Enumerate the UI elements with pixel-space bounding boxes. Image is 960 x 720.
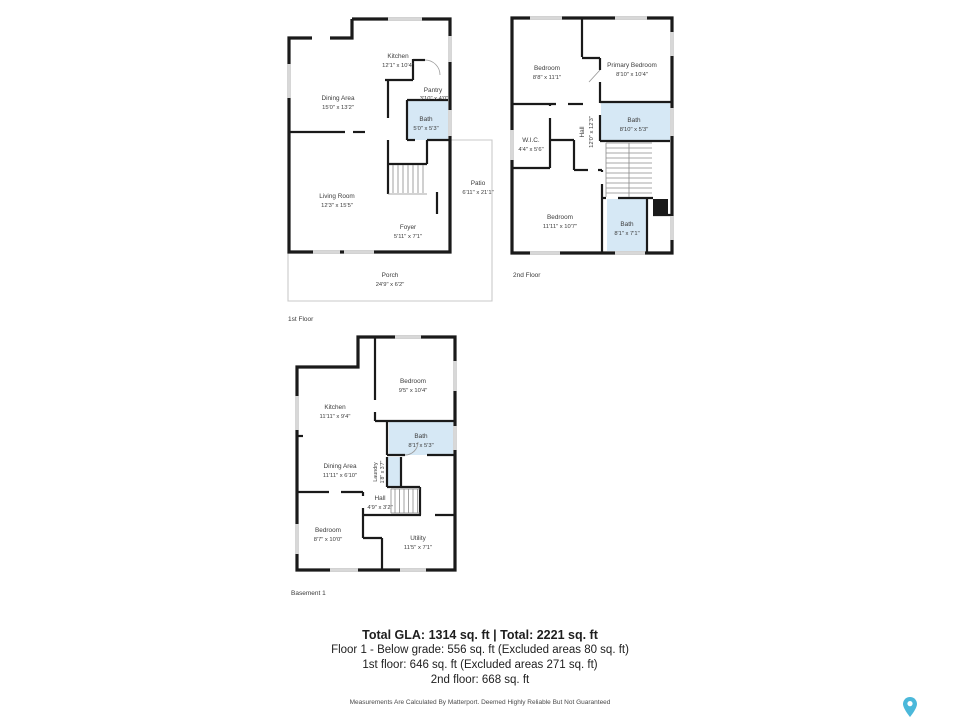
room-dims: 8'1" x 7'1" [614,231,639,237]
floor-label-1st: 1st Floor [288,316,313,323]
basement-floor-plan: Bedroom 9'5" x 10'4" Kitchen 11'11" x 9'… [283,328,463,578]
chase-fill [653,199,668,215]
room-dims: 11'11" x 10'7" [543,224,577,230]
room-dims: 8'10" x 10'4" [616,72,648,78]
stairs [391,489,420,513]
stairs [606,143,652,197]
room-dims: 12'3" x 15'5" [321,203,353,209]
room-label: Laundry [373,462,379,482]
total-gla-title: Total GLA: 1314 sq. ft | Total: 2221 sq.… [0,628,960,643]
door-swing [589,70,600,82]
room-dims: 3'10" x 4'0" [420,96,449,102]
room-label: Bedroom [547,214,573,221]
room-dims: 5'0" x 5'3" [413,126,438,132]
room-dims: 12'0" x 12'3" [589,116,595,148]
room-dims: 11'11" x 6'10" [323,473,357,479]
room-label: Primary Bedroom [607,62,657,69]
room-dims: 12'1" x 10'4" [382,63,414,69]
room-dims: 4'9" x 3'2" [367,505,392,511]
area-summary: Total GLA: 1314 sq. ft | Total: 2221 sq.… [0,628,960,688]
summary-line-2nd-floor: 2nd floor: 668 sq. ft [0,673,960,688]
room-label: Pantry [424,87,443,94]
pin-hole [907,701,912,706]
room-dims: 6'11" x 21'1" [462,190,493,196]
floor-label-basement: Basement 1 [291,590,326,597]
room-dims: 1'8" x 3'7" [380,461,386,484]
room-dims: 8'10" x 5'3" [620,127,649,133]
rotated-laundry-label: Laundry 1'8" x 3'7" [373,461,386,484]
matterport-pin-logo [902,696,918,718]
room-label: Dining Area [321,95,354,102]
room-dims: 5'11" x 7'1" [394,234,422,240]
room-dims: 8'1" x 5'3" [408,443,433,449]
summary-line-1st-floor: 1st floor: 646 sq. ft (Excluded areas 27… [0,658,960,673]
room-dims: 8'7" x 10'0" [314,537,343,543]
second-floor-plan: Bedroom 8'8" x 11'1" Primary Bedroom 8'1… [510,12,680,262]
room-dims: 15'0" x 13'2" [322,105,354,111]
room-label: Bedroom [315,527,341,534]
room-label: Utility [410,535,426,542]
stairs [388,165,427,194]
room-label: Kitchen [324,404,346,411]
room-label: Bedroom [534,65,560,72]
floor-plan-page: { "floors": [ { "label": "1st Floor", "r… [0,0,960,720]
room-label: Bedroom [400,378,426,385]
room-dims: 24'9" x 6'2" [376,282,405,288]
room-label: Patio [471,180,486,187]
room-dims: 4'4" x 5'6" [518,147,543,153]
door-swing [425,60,440,75]
room-label: Hall [579,126,586,137]
room-label: Kitchen [387,53,409,60]
room-label: Living Room [319,193,355,200]
room-label: Foyer [400,224,417,231]
room-label: Bath [627,117,641,124]
measurement-disclaimer: Measurements Are Calculated By Matterpor… [0,699,960,706]
summary-line-below-grade: Floor 1 - Below grade: 556 sq. ft (Exclu… [0,643,960,658]
room-label: W.I.C. [522,137,540,144]
room-label: Hall [374,495,385,502]
room-dims: 9'5" x 10'4" [399,388,428,394]
room-dims: 11'5" x 7'1" [404,545,432,551]
room-label: Bath [414,433,428,440]
rotated-hall-label: Hall 12'0" x 12'3" [579,116,595,148]
room-label: Porch [382,272,399,279]
pin-shape [903,697,917,717]
room-label: Bath [620,221,634,228]
room-label: Bath [419,116,433,123]
floor-label-2nd: 2nd Floor [513,272,540,279]
room-dims: 8'8" x 11'1" [533,75,561,81]
laundry-room-fill [387,457,401,487]
room-labels: Bedroom 9'5" x 10'4" Kitchen 11'11" x 9'… [314,378,434,551]
room-dims: 11'11" x 9'4" [320,414,351,420]
first-floor-plan: Kitchen 12'1" x 10'4" Dining Area 15'0" … [285,12,515,312]
room-label: Dining Area [323,463,356,470]
